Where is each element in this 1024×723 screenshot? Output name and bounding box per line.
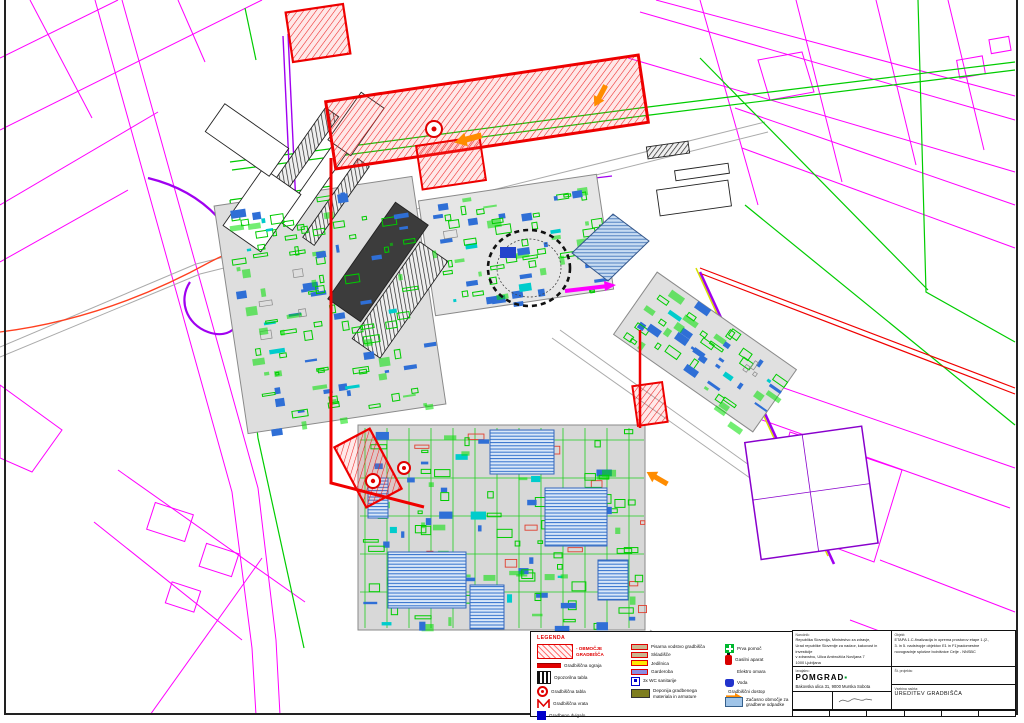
legend-item: Deponija gradbenega materiala in armatur… (631, 688, 723, 699)
legend-item-label: Gradbiščna ograja (564, 663, 629, 669)
legend-box: LEGENDA - OBMOČJE GRADBIŠČA Gradbiščna o… (530, 631, 795, 717)
construction-zone-icon (537, 644, 573, 659)
title-block-small-cell (942, 710, 979, 716)
legend-item-label: Prva pomoč (737, 646, 791, 652)
legend-title: LEGENDA (537, 635, 565, 642)
title-block: Naročnik: Republika Slovenija, Ministrst… (792, 630, 1016, 717)
title-block-cell-project: Objekt: ETAPA 1.C-finalizacija in oprema… (892, 631, 1015, 667)
legend-item: Elektro omara (725, 667, 791, 676)
legend-item: - OBMOČJE GRADBIŠČA (537, 644, 629, 659)
legend-item-label: Opozorilna tabla (554, 675, 629, 681)
legend-item: Pisarna vodstvo gradbišča (631, 644, 723, 650)
legend-item: Jedilnica (631, 660, 723, 666)
legend-item: Prva pomoč (725, 644, 791, 653)
legend-item-label: Skladišče (651, 652, 723, 658)
legend-item: Voda (725, 679, 791, 687)
title-block-cell-client: Naročnik: Republika Slovenija, Ministrst… (793, 631, 892, 667)
title-block-cell-drawing-title: Vsebina načrta: UREDITEV GRADBIŠČA (892, 685, 1015, 710)
legend-column-3: Prva pomoč Gasilni aparat Elektro omara … (725, 644, 791, 710)
legend-column-2: Pisarna vodstvo gradbišča Skladišče Jedi… (631, 644, 723, 702)
legend-item: Začasno območje za gradbene odpadke (725, 697, 791, 708)
legend-item-label: Voda (737, 680, 791, 686)
legend-item: Gradbiščna tabla (537, 686, 629, 697)
fire-extinguisher-icon (725, 655, 732, 665)
building-outline-purple (745, 426, 878, 559)
office-cabin-icon (631, 644, 648, 650)
legend-column-1: - OBMOČJE GRADBIŠČA Gradbiščna ograja Op… (537, 644, 629, 723)
contractor-logo: POMGRAD▪ (796, 673, 849, 682)
warning-sign-icon (537, 671, 551, 684)
site-plan-drawing (0, 0, 1024, 715)
storage-cabin-icon (631, 652, 648, 658)
legend-item-label: Gradbiščna vrata (553, 701, 629, 707)
dining-cabin-icon (631, 660, 648, 666)
legend-item-label: Gradbiščni dostop (728, 689, 791, 695)
temporary-area-icon (725, 697, 743, 707)
title-block-cell-empty (793, 692, 833, 710)
title-block-small-cell (793, 710, 830, 716)
client-text: Republika Slovenija, Ministrstvo za zdra… (796, 637, 878, 664)
legend-item: 3x WC sanitarije (631, 677, 723, 686)
contractor-address: Bakovska ulica 31, 9000 Murska Sobota (796, 684, 889, 689)
title-block-small-cell (979, 710, 1015, 716)
material-depot-icon (631, 689, 650, 698)
legend-item-label: Gradbeno dvigalo (549, 713, 629, 719)
title-block-cell-signature (833, 692, 892, 710)
legend-item-label: Gradbiščna tabla (551, 689, 629, 695)
legend-item-label: Deponija gradbenega materiala in armatur… (653, 688, 723, 699)
legend-item-label: Gasilni aparat (735, 657, 791, 663)
legend-item-label: Začasno območje za gradbene odpadke (746, 697, 791, 708)
drawing-title: UREDITEV GRADBIŠČA (895, 691, 963, 697)
title-block-bottom-row (793, 710, 1015, 716)
legend-item: Gradbiščni dostop (725, 689, 791, 695)
legend-item: Opozorilna tabla (537, 671, 629, 684)
title-block-small-cell (830, 710, 867, 716)
project-number-label: Št. projekta: (895, 669, 1013, 673)
site-sign-icon (537, 686, 548, 697)
title-block-cell-project-number: Št. projekta: (892, 667, 1015, 685)
construction-hoist-icon (537, 711, 546, 720)
wc-unit-icon (631, 677, 640, 686)
legend-item: Skladišče (631, 652, 723, 658)
title-block-small-cell (867, 710, 904, 716)
legend-item: Gradbiščna ograja (537, 663, 629, 669)
client-label: Naročnik: (796, 633, 889, 637)
legend-item-label: Pisarna vodstvo gradbišča (651, 644, 723, 650)
legend-item: Gasilni aparat (725, 655, 791, 665)
title-block-small-cell (905, 710, 942, 716)
legend-item: Gradbiščna vrata (537, 699, 629, 709)
legend-item: Garderoba (631, 669, 723, 675)
site-gate-icon (537, 699, 550, 709)
signature-scribble (836, 694, 876, 706)
electric-cabinet-icon (725, 667, 734, 676)
site-fence-icon (537, 663, 561, 668)
legend-item-label: Garderoba (651, 669, 723, 675)
legend-item: Gradbeno dvigalo (537, 711, 629, 720)
legend-item-label: - OBMOČJE GRADBIŠČA (576, 646, 629, 657)
project-text: ETAPA 1.C-finalizacija in oprema prostor… (895, 637, 990, 653)
first-aid-icon (725, 644, 734, 653)
wardrobe-cabin-icon (631, 669, 648, 675)
legend-item-label: 3x WC sanitarije (643, 678, 723, 684)
title-block-cell-contractor: Izvajalec: POMGRAD▪ Bakovska ulica 31, 9… (793, 667, 892, 692)
project-label: Objekt: (895, 633, 1013, 637)
legend-item-label: Elektro omara (737, 669, 791, 675)
contractor-label: Izvajalec: (796, 669, 889, 673)
water-point-icon (725, 679, 734, 687)
legend-item-label: Jedilnica (651, 661, 723, 667)
